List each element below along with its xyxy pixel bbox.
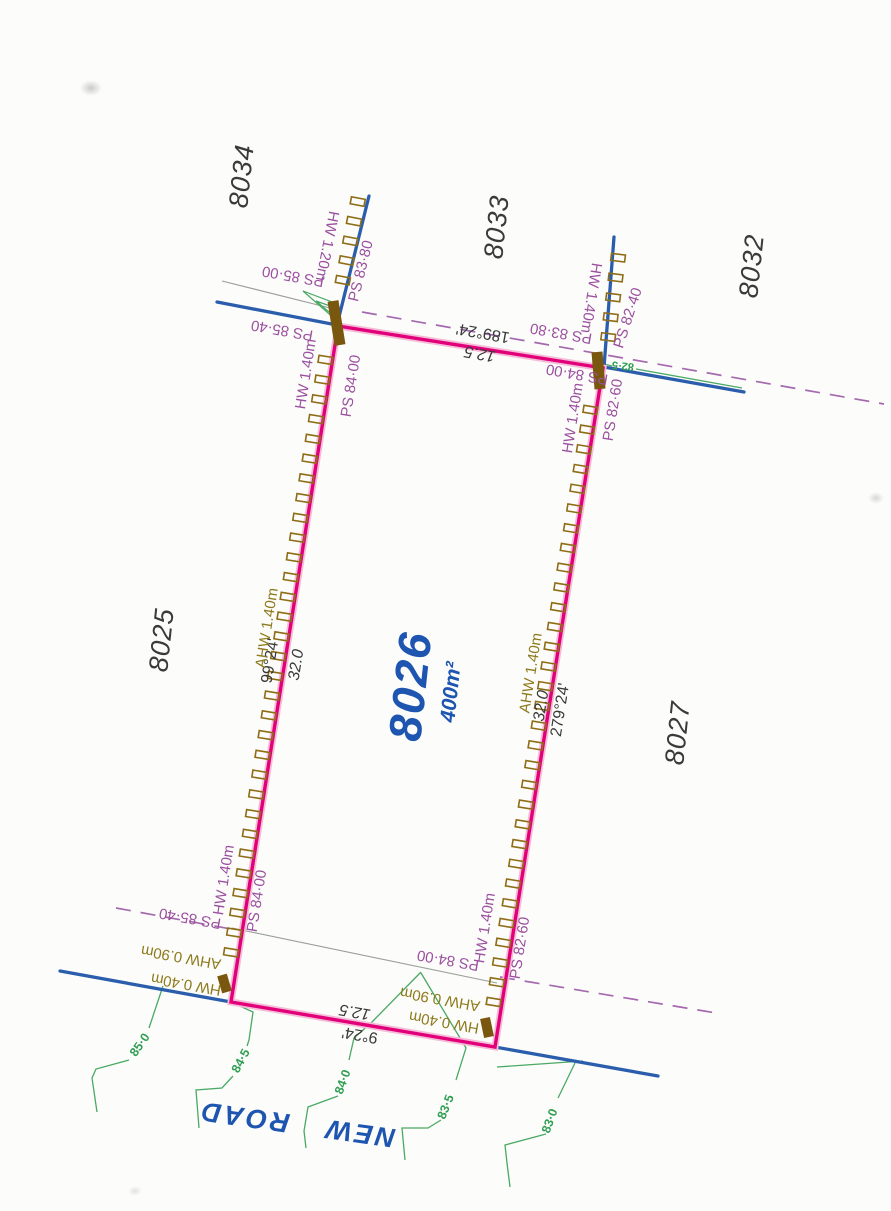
contour-lines xyxy=(92,364,742,1187)
adjacent-lot-label-8034: 8034 xyxy=(225,143,259,210)
contour-label-82-5: 82·5 xyxy=(611,358,634,371)
adjacent-lot-label-8027: 8027 xyxy=(661,700,695,767)
adjacent-lot-label-8025: 8025 xyxy=(145,607,179,674)
survey-plan: 8034 8033 8032 8025 8027 8026 400m² NEW … xyxy=(0,0,891,1211)
adjacent-lot-label-8033: 8033 xyxy=(480,194,514,261)
retaining-wall-segment xyxy=(603,313,618,322)
retaining-wall-segment xyxy=(346,216,361,225)
adjacent-lot-label-8032: 8032 xyxy=(735,233,769,300)
parcel-number-label: 8026 xyxy=(381,629,438,744)
retaining-wall-segment xyxy=(350,197,365,206)
